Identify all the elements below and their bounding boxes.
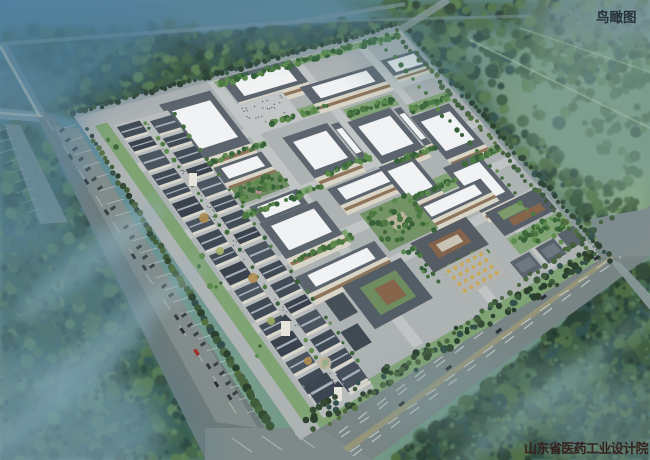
- svg-text:山东省医药工业设计院: 山东省医药工业设计院: [524, 441, 649, 456]
- svg-text:鸟瞰图: 鸟瞰图: [596, 9, 637, 25]
